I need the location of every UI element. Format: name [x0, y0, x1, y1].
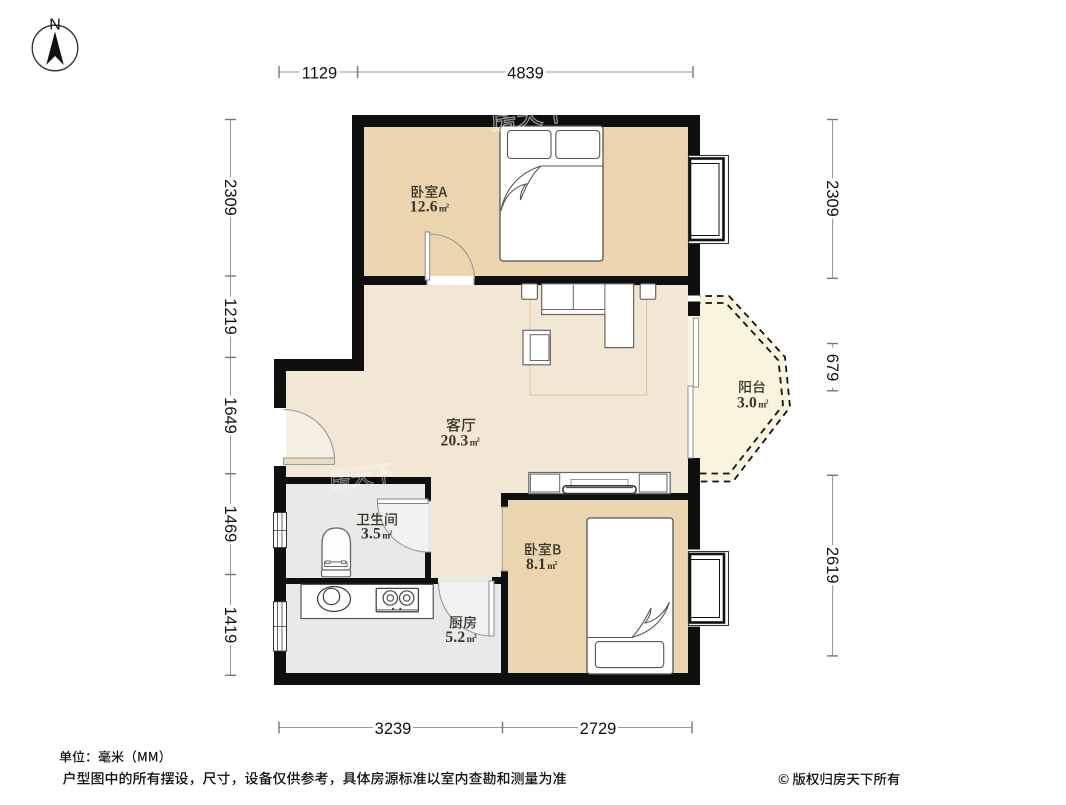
svg-text:2: 2 [446, 202, 449, 209]
svg-text:2619: 2619 [823, 547, 841, 584]
svg-text:3.5: 3.5 [361, 526, 381, 543]
svg-text:2729: 2729 [580, 720, 617, 738]
svg-text:2: 2 [765, 398, 768, 405]
svg-text:2: 2 [474, 633, 477, 640]
svg-text:2: 2 [477, 436, 480, 443]
svg-text:2: 2 [389, 529, 392, 536]
svg-text:1129: 1129 [302, 64, 337, 82]
svg-text:5.2: 5.2 [445, 629, 465, 646]
svg-text:4839: 4839 [507, 64, 544, 82]
svg-text:3239: 3239 [375, 720, 412, 738]
svg-text:679: 679 [823, 354, 841, 382]
svg-text:2309: 2309 [823, 180, 841, 217]
svg-text:1219: 1219 [221, 298, 239, 335]
svg-text:1469: 1469 [221, 506, 239, 543]
svg-text:N: N [49, 17, 61, 34]
svg-text:3.0: 3.0 [737, 395, 757, 412]
svg-text:2309: 2309 [221, 179, 239, 216]
svg-text:2: 2 [554, 560, 557, 567]
svg-text:1419: 1419 [221, 607, 239, 644]
svg-text:12.6: 12.6 [410, 199, 438, 216]
svg-text:20.3: 20.3 [441, 433, 469, 450]
svg-text:8.1: 8.1 [526, 556, 546, 573]
svg-text:1649: 1649 [221, 397, 239, 434]
